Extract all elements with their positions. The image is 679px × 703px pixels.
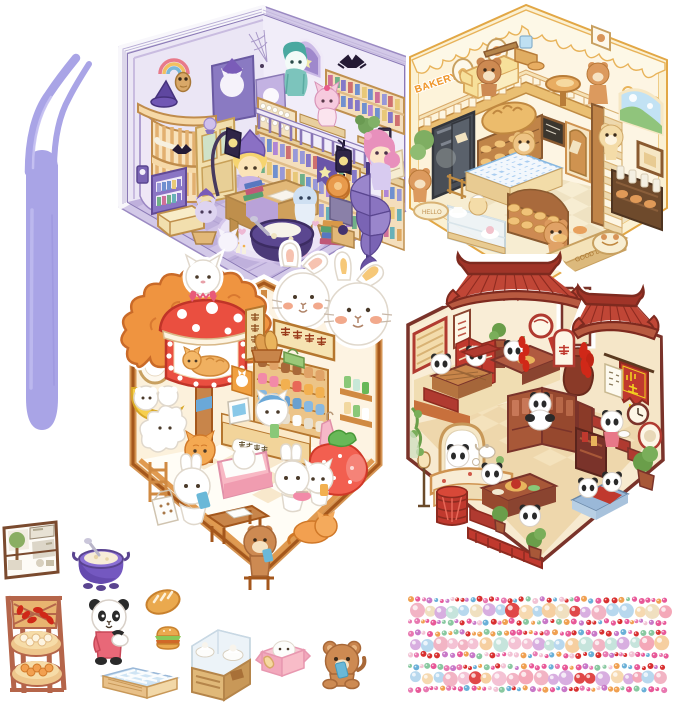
svg-text:HELLO: HELLO xyxy=(422,210,442,216)
